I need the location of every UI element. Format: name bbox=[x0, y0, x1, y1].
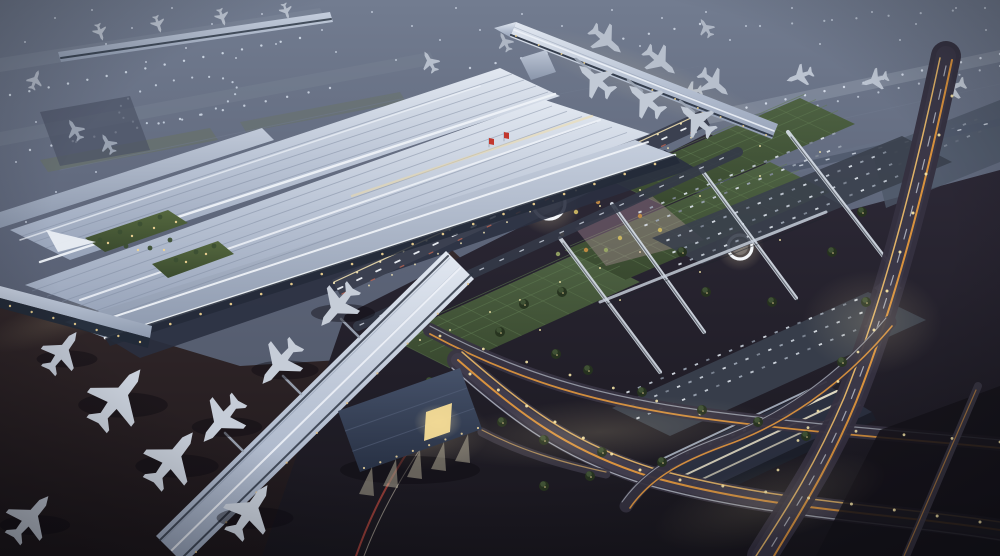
vignette bbox=[0, 0, 1000, 556]
scene-svg bbox=[0, 0, 1000, 556]
airport-aerial-rendering bbox=[0, 0, 1000, 556]
